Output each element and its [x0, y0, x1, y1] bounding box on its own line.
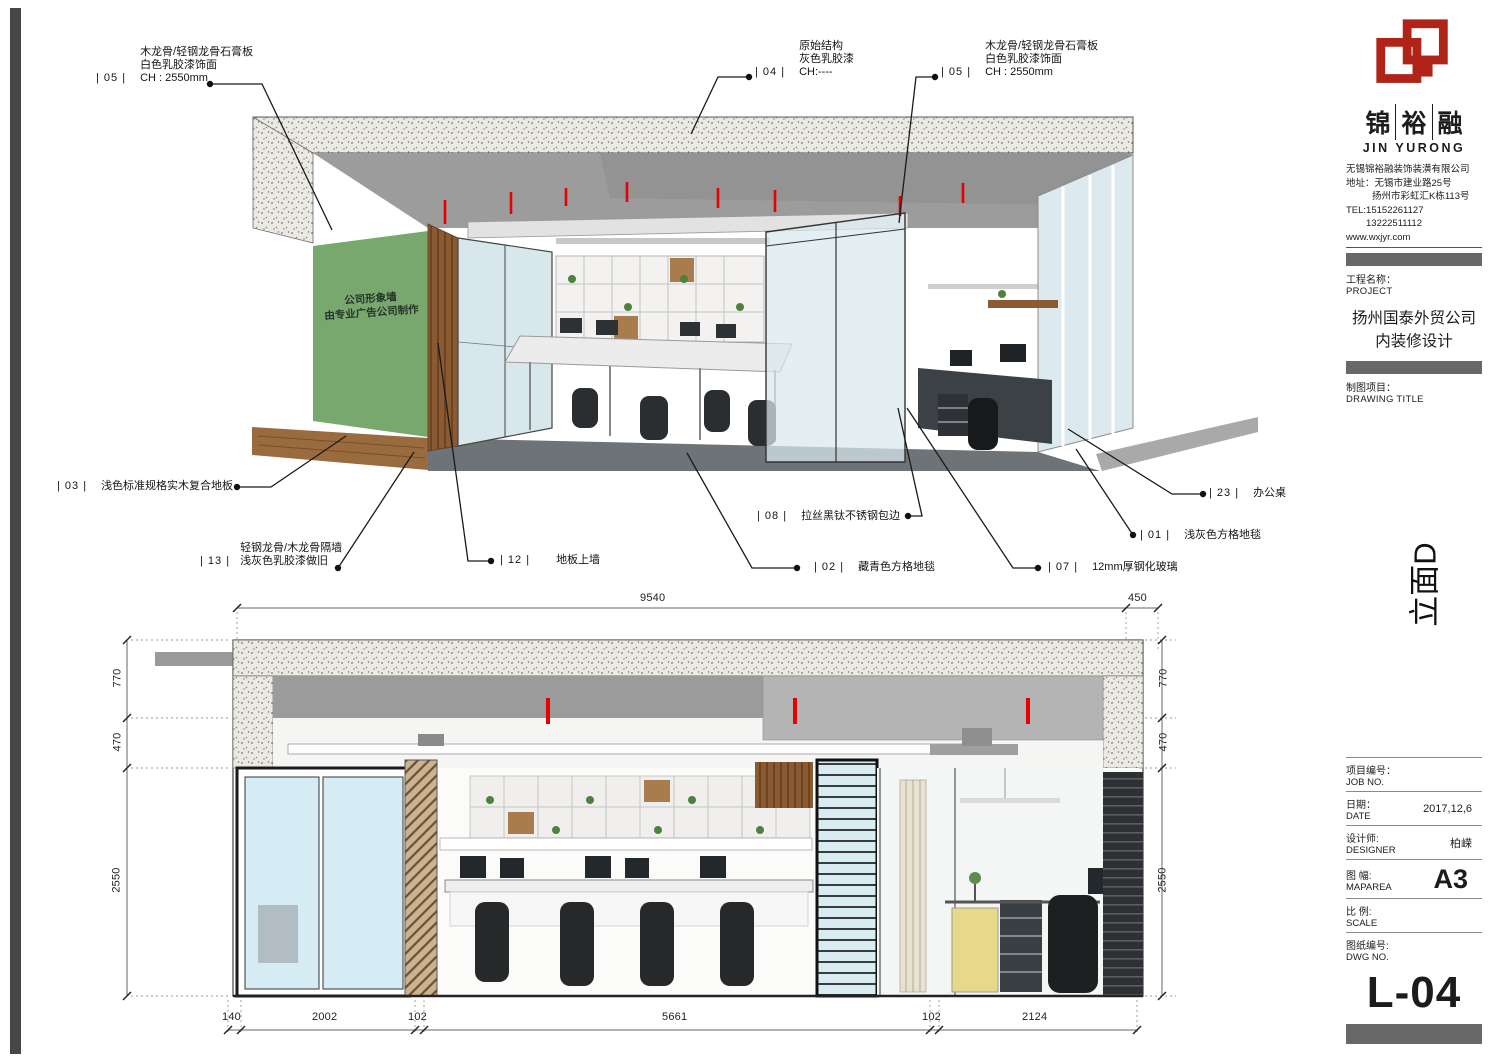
callout-original-structure: | 04 | 原始结构 灰色乳胶漆 CH:---- [755, 40, 854, 79]
callout-line: 浅灰色方格地毯 [1184, 529, 1261, 542]
project-label-en: PROJECT [1346, 286, 1482, 297]
company-name: 无锡锦裕融装饰装潢有限公司 [1346, 163, 1482, 177]
callout-black-titanium-edge: | 08 | 拉丝黑钛不锈钢包边 [757, 510, 900, 523]
callout-ceiling-gypsum-right: | 05 | 木龙骨/轻钢龙骨石膏板 白色乳胶漆饰面 CH : 2550mm [941, 40, 1098, 79]
callout-line: 拉丝黑钛不锈钢包边 [801, 510, 900, 523]
field-label-cn: 图纸编号: [1346, 937, 1389, 952]
separator-bar [1346, 361, 1482, 374]
field-dwg-no: 图纸编号:DWG NO. [1346, 932, 1482, 966]
brand-char: 融 [1432, 104, 1468, 140]
field-label-en: DWG NO. [1346, 952, 1389, 963]
separator-bar [1346, 253, 1482, 266]
callout-tag: | 12 | [500, 554, 530, 567]
dim-left-2550: 2550 [111, 867, 123, 892]
company-info: 无锡锦裕融装饰装潢有限公司 地址：无锡市建业路25号 扬州市彩虹汇K栋113号 … [1346, 163, 1482, 248]
callout-line: 白色乳胶漆饰面 [985, 53, 1098, 66]
brand-char: 锦 [1360, 104, 1395, 140]
field-label-en: JOB NO. [1346, 777, 1396, 788]
field-date: 日期：DATE 2017,12,6 [1346, 791, 1482, 825]
company-website: www.wxjyr.com [1346, 231, 1482, 245]
field-label-cn: 项目编号： [1346, 762, 1396, 777]
title-block-spacer [1346, 405, 1482, 757]
project-label-cn: 工程名称： [1346, 271, 1482, 286]
dim-right-470: 470 [1157, 733, 1169, 752]
callout-line: 12mm厚钢化玻璃 [1092, 561, 1178, 574]
title-block: 锦裕融 JIN YURONG 无锡锦裕融装饰装潢有限公司 地址：无锡市建业路25… [1346, 14, 1482, 1044]
callout-line: 原始结构 [799, 40, 854, 53]
company-address-1: 地址：无锡市建业路25号 [1346, 177, 1482, 191]
field-value-designer: 柏嵘 [1450, 835, 1482, 851]
field-value-date: 2017,12,6 [1423, 803, 1482, 815]
field-label-en: DATE [1346, 811, 1376, 822]
callout-line: 木龙骨/轻钢龙骨石膏板 [985, 40, 1098, 53]
callout-tag: | 23 | [1209, 487, 1239, 500]
dim-right-2550: 2550 [1157, 867, 1169, 892]
callout-tag: | 02 | [814, 561, 844, 574]
drawing-linework [0, 0, 1500, 1061]
callout-tag: | 05 | [96, 72, 126, 85]
callout-tag: | 08 | [757, 510, 787, 523]
field-label-en: SCALE [1346, 918, 1377, 929]
callout-line: 地板上墙 [556, 554, 600, 567]
field-job-no: 项目编号：JOB NO. [1346, 757, 1482, 791]
dim-top-9540: 9540 [640, 592, 665, 604]
dim-bottom-140: 140 [222, 1011, 241, 1023]
field-label-cn: 设计师: [1346, 830, 1396, 845]
dim-left-470: 470 [111, 733, 123, 752]
drawing-sheet: 公司形象墙 由专业广告公司制作 | 05 | 木龙骨/轻钢龙骨石膏板 白色乳胶漆… [0, 0, 1500, 1061]
dim-bottom-5661: 5661 [662, 1011, 687, 1023]
dim-left-770: 770 [111, 669, 123, 688]
field-designer: 设计师:DESIGNER 柏嵘 [1346, 825, 1482, 859]
callout-tag: | 01 | [1140, 529, 1170, 542]
callout-line: CH : 2550mm [140, 72, 253, 85]
drawing-number: L-04 [1346, 968, 1482, 1018]
dim-bottom-2002: 2002 [312, 1011, 337, 1023]
project-name-line1: 扬州国泰外贸公司 [1346, 307, 1482, 330]
company-address-2: 扬州市彩虹汇K栋113号 [1346, 190, 1482, 204]
callout-line: 浅色标准规格实木复合地板 [101, 480, 233, 493]
callout-tag: | 04 | [755, 66, 785, 79]
callout-office-desk: | 23 | 办公桌 [1209, 487, 1286, 500]
dim-right-770: 770 [1157, 669, 1169, 688]
callout-line: 办公桌 [1253, 487, 1286, 500]
callout-line: 藏青色方格地毯 [858, 561, 935, 574]
callout-line: 白色乳胶漆饰面 [140, 59, 253, 72]
field-label-cn: 图 幅: [1346, 867, 1392, 882]
callout-line: 灰色乳胶漆 [799, 53, 854, 66]
drawing-title-label-cn: 制图项目： [1346, 379, 1482, 394]
field-label-en: MAPAREA [1346, 882, 1392, 893]
dim-bottom-102b: 102 [922, 1011, 941, 1023]
callout-tag: | 07 | [1048, 561, 1078, 574]
project-name-line2: 内装修设计 [1346, 330, 1482, 353]
dim-bottom-2124: 2124 [1022, 1011, 1047, 1023]
callout-line: 木龙骨/轻钢龙骨石膏板 [140, 46, 253, 59]
callout-navy-carpet: | 02 | 藏青色方格地毯 [814, 561, 935, 574]
drawing-title-label-en: DRAWING TITLE [1346, 394, 1482, 405]
dim-bottom-102a: 102 [408, 1011, 427, 1023]
dim-top-450: 450 [1128, 592, 1147, 604]
callout-line: 浅灰色乳胶漆做旧 [240, 555, 342, 568]
callout-tempered-glass: | 07 | 12mm厚钢化玻璃 [1048, 561, 1178, 574]
brand-name-cn: 锦裕融 [1346, 104, 1482, 140]
company-tel-2: 13222511112 [1346, 217, 1482, 231]
callout-floor-on-wall: | 12 | 地板上墙 [500, 554, 600, 567]
brand-char: 裕 [1395, 104, 1431, 140]
callout-tag: | 13 | [200, 555, 230, 568]
field-label-cn: 比 例: [1346, 903, 1377, 918]
callout-line: CH:---- [799, 66, 854, 79]
callout-tag: | 05 | [941, 66, 971, 79]
project-name: 扬州国泰外贸公司 内装修设计 [1346, 307, 1482, 353]
callout-gray-carpet: | 01 | 浅灰色方格地毯 [1140, 529, 1261, 542]
field-label-en: DESIGNER [1346, 845, 1396, 856]
callout-line: 轻钢龙骨/木龙骨隔墙 [240, 542, 342, 555]
callout-wood-flooring: | 03 | 浅色标准规格实木复合地板 [57, 480, 233, 493]
brand-name-en: JIN YURONG [1346, 141, 1482, 155]
separator-bar-bottom [1346, 1024, 1482, 1044]
elevation-view [155, 640, 1143, 996]
field-label-cn: 日期： [1346, 796, 1376, 811]
callout-stud-partition: | 13 | 轻钢龙骨/木龙骨隔墙 浅灰色乳胶漆做旧 [200, 542, 342, 568]
field-maparea: 图 幅:MAPAREA A3 [1346, 859, 1482, 898]
field-scale: 比 例:SCALE [1346, 898, 1482, 932]
callout-line: CH : 2550mm [985, 66, 1098, 79]
jin-yurong-logo-icon [1370, 14, 1458, 102]
company-tel-1: TEL:15152261127 [1346, 204, 1482, 218]
field-value-maparea: A3 [1433, 864, 1482, 895]
callout-tag: | 03 | [57, 480, 87, 493]
callout-ceiling-gypsum-left: | 05 | 木龙骨/轻钢龙骨石膏板 白色乳胶漆饰面 CH : 2550mm [96, 46, 253, 85]
